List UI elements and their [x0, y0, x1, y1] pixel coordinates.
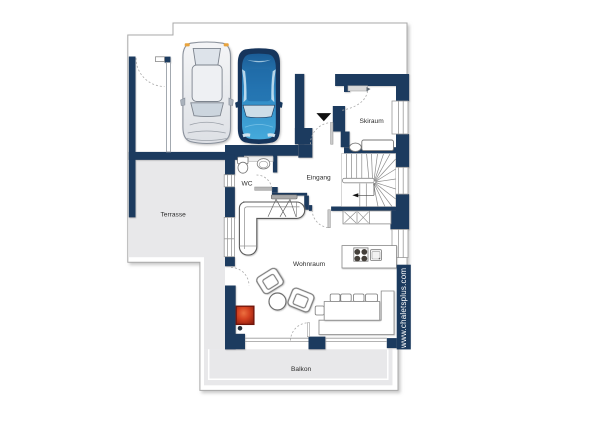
svg-text:Skiraum: Skiraum: [360, 118, 385, 125]
svg-text:Balkon: Balkon: [291, 366, 311, 373]
svg-text:www.chaletsplus.com: www.chaletsplus.com: [399, 268, 408, 349]
svg-text:Wohnraum: Wohnraum: [293, 261, 326, 268]
svg-text:WC: WC: [242, 181, 253, 188]
svg-text:Terrasse: Terrasse: [161, 212, 187, 219]
svg-text:Eingang: Eingang: [307, 175, 332, 182]
